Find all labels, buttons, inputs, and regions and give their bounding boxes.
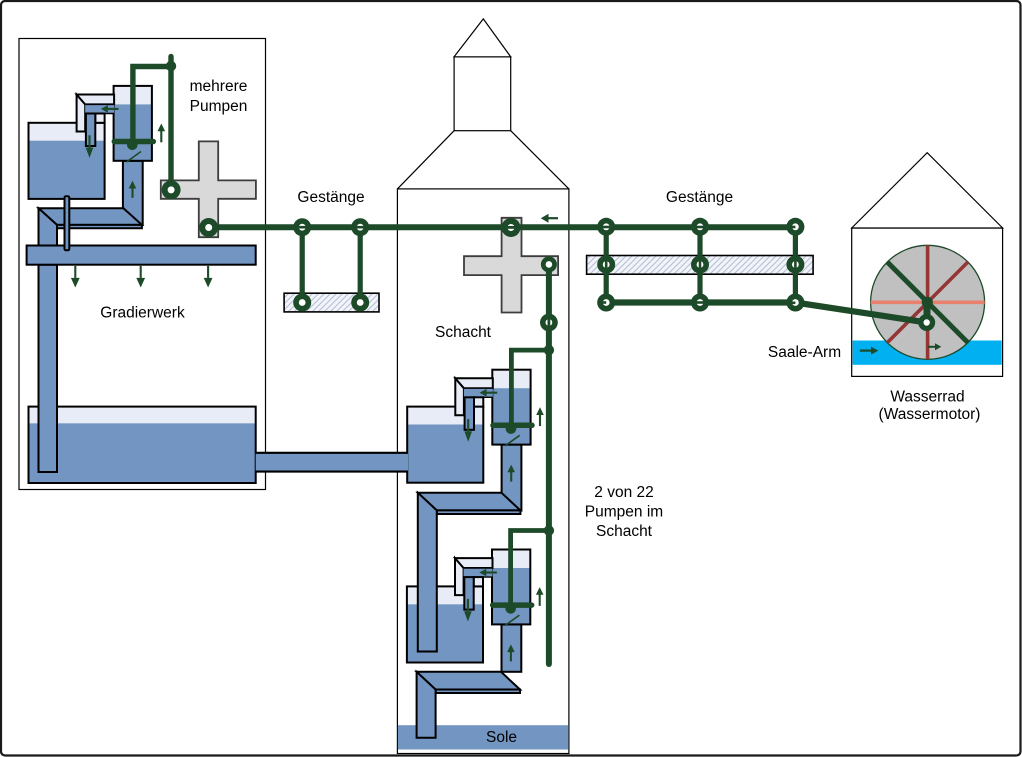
svg-text:Pumpen: Pumpen [190,98,248,115]
svg-text:Sole: Sole [486,729,517,746]
svg-text:(Wassermotor): (Wassermotor) [879,406,981,423]
svg-text:Gradierwerk: Gradierwerk [100,305,185,322]
svg-text:Gestänge: Gestänge [297,189,364,206]
svg-text:2 von 22: 2 von 22 [594,484,653,501]
svg-text:Pumpen im: Pumpen im [585,504,663,521]
svg-text:Gestänge: Gestänge [666,189,733,206]
svg-text:Saale-Arm: Saale-Arm [768,344,841,361]
svg-text:Wasserrad: Wasserrad [890,389,964,406]
svg-text:Schacht: Schacht [435,324,492,341]
svg-text:mehrere: mehrere [190,78,248,95]
svg-text:Schacht: Schacht [596,523,653,540]
